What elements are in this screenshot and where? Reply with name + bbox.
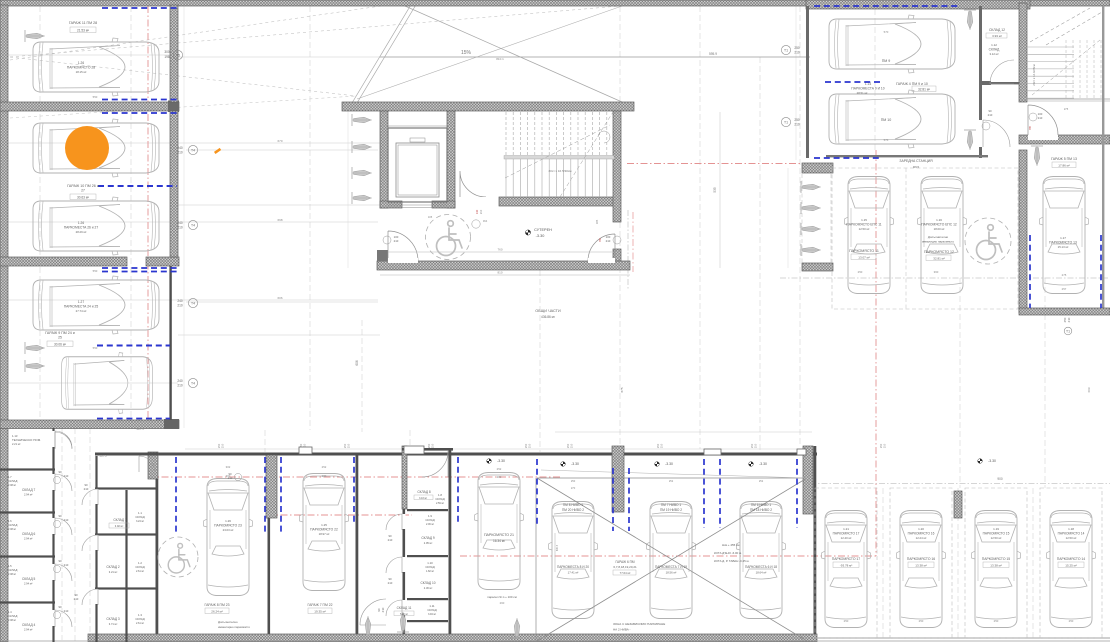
svg-text:18.64 м²: 18.64 м²	[756, 571, 767, 575]
svg-text:ПАРКОМЕСТА 8 И 20: ПАРКОМЕСТА 8 И 20	[557, 565, 589, 569]
svg-text:90: 90	[58, 605, 62, 609]
svg-text:ЗОНА С НЕЗАВИСИМО ПАРКИРАНЕ: ЗОНА С НЕЗАВИСИМО ПАРКИРАНЕ	[613, 622, 665, 626]
svg-text:ПАРКОМЯСТО 17: ПАРКОМЯСТО 17	[832, 557, 861, 561]
svg-text:550: 550	[93, 346, 98, 350]
svg-text:Т1: Т1	[784, 48, 788, 52]
svg-text:Т1: Т1	[1066, 329, 1070, 333]
svg-text:630.5: 630.5	[556, 544, 559, 551]
svg-text:240: 240	[177, 379, 183, 383]
svg-text:210: 210	[388, 538, 393, 542]
svg-text:ПАРКОМЕСТА 9 И 10: ПАРКОМЕСТА 9 И 10	[851, 87, 884, 91]
svg-text:12.50 м²: 12.50 м²	[991, 536, 1002, 540]
svg-text:1.18: 1.18	[1068, 527, 1074, 531]
svg-text:ПАРКОМЕСТА 24 и 25: ПАРКОМЕСТА 24 и 25	[64, 305, 99, 309]
svg-text:ПАРКОМЯСТО 23: ПАРКОМЯСТО 23	[214, 524, 242, 528]
svg-text:Нсв.+ 455 см: Нсв.+ 455 см	[722, 543, 739, 547]
svg-text:Т1: Т1	[784, 120, 788, 124]
svg-text:275: 275	[1064, 107, 1069, 111]
svg-text:12.24 м²: 12.24 м²	[916, 536, 927, 540]
svg-text:1.26: 1.26	[225, 519, 231, 523]
svg-text:21.53 м²: 21.53 м²	[77, 28, 89, 32]
svg-text:ПМ 20 НИВО 2: ПМ 20 НИВО 2	[562, 508, 584, 512]
svg-text:КОТА Д. Р. ТАВАН -0.45 м.: КОТА Д. Р. ТАВАН -0.45 м.	[714, 559, 749, 563]
svg-text:198: 198	[164, 55, 170, 59]
svg-text:210: 210	[794, 51, 800, 55]
svg-text:364: 364	[483, 219, 488, 223]
svg-text:ГАРАЖ 11 ПМ 28: ГАРАЖ 11 ПМ 28	[69, 21, 97, 25]
svg-text:250: 250	[343, 443, 347, 448]
svg-text:210: 210	[754, 443, 758, 448]
svg-text:ГАРАЖ 9 ПМ 24 и: ГАРАЖ 9 ПМ 24 и	[45, 331, 75, 335]
svg-text:СКЛАД: СКЛАД	[425, 565, 434, 569]
svg-text:185: 185	[595, 219, 599, 224]
svg-text:250: 250	[524, 443, 528, 448]
svg-text:Т5: Т5	[176, 53, 180, 57]
svg-text:ПАРКОМЕСТА 7 И 19: ПАРКОМЕСТА 7 И 19	[655, 565, 687, 569]
svg-text:ПАРКОМЯСТО 14: ПАРКОМЯСТО 14	[1057, 557, 1086, 561]
svg-text:3.93 м²: 3.93 м²	[992, 34, 1002, 38]
svg-text:210: 210	[221, 443, 225, 448]
svg-text:СКЛАД: СКЛАД	[427, 608, 436, 612]
svg-text:210: 210	[381, 607, 385, 612]
svg-text:810.1: 810.1	[496, 57, 504, 61]
svg-text:Т4: Т4	[191, 223, 195, 227]
svg-text:77.64 м²: 77.64 м²	[620, 571, 631, 575]
svg-text:5.20 м²: 5.20 м²	[400, 613, 408, 616]
svg-text:ОБЩИ ЧАСТИ: ОБЩИ ЧАСТИ	[535, 309, 561, 313]
svg-text:210: 210	[177, 151, 183, 155]
svg-text:ПАРКОМЯСТО 22: ПАРКОМЯСТО 22	[310, 528, 338, 532]
svg-text:СКЛАД: СКЛАД	[8, 523, 17, 527]
svg-text:ПАРКОМЯСТО 17: ПАРКОМЯСТО 17	[833, 532, 860, 536]
svg-text:240: 240	[177, 146, 183, 150]
svg-text:606: 606	[355, 360, 359, 366]
svg-text:СКЛАД: СКЛАД	[435, 497, 444, 501]
svg-text:270: 270	[571, 486, 576, 490]
svg-text:ГАРАЖ 6 ПМ: ГАРАЖ 6 ПМ	[615, 560, 634, 564]
svg-text:105: 105	[428, 215, 433, 219]
svg-text:670: 670	[277, 139, 282, 143]
svg-text:210: 210	[988, 113, 993, 117]
svg-text:3.21 м²: 3.21 м²	[109, 570, 118, 574]
svg-text:Т4: Т4	[191, 301, 195, 305]
svg-text:13.38 м²: 13.38 м²	[990, 564, 1001, 568]
svg-text:3.94 м²: 3.94 м²	[428, 613, 436, 616]
svg-text:2.08 м²: 2.08 м²	[8, 573, 16, 576]
svg-text:2.94 м²: 2.94 м²	[24, 628, 33, 632]
svg-text:2.94 м²: 2.94 м²	[24, 582, 33, 586]
svg-text:436.86 м²: 436.86 м²	[541, 315, 555, 319]
svg-text:3.43 м²: 3.43 м²	[419, 497, 427, 500]
svg-text:СКЛАД: СКЛАД	[425, 518, 434, 522]
svg-text:ПВ: ПВ	[1028, 126, 1032, 130]
svg-text:1.25: 1.25	[321, 523, 327, 527]
svg-text:360: 360	[226, 474, 231, 478]
svg-text:ТЕХНИЧЕСКО ПОМ.: ТЕХНИЧЕСКО ПОМ.	[12, 438, 41, 442]
svg-text:2.21 м²: 2.21 м²	[12, 442, 21, 446]
svg-text:ПАРКОМЯСТО 15: ПАРКОМЯСТО 15	[982, 557, 1011, 561]
svg-text:32.81 м²: 32.81 м²	[933, 257, 944, 261]
svg-text:СКЛАД 1: СКЛАД 1	[113, 518, 127, 522]
svg-text:СКЛАД 6: СКЛАД 6	[22, 532, 36, 536]
svg-text:ПМ 7 НИВО 1: ПМ 7 НИВО 1	[661, 503, 681, 507]
svg-text:1.27: 1.27	[78, 300, 84, 304]
svg-text:30.63 м²: 30.63 м²	[77, 195, 89, 199]
svg-text:300: 300	[164, 50, 170, 54]
svg-text:250: 250	[879, 443, 883, 448]
svg-text:СКЛАД: СКЛАД	[8, 479, 17, 483]
svg-text:27: 27	[81, 189, 85, 193]
svg-text:210: 210	[479, 209, 483, 214]
svg-text:18.56 м²: 18.56 м²	[666, 571, 677, 575]
svg-text:297.3: 297.3	[100, 454, 107, 458]
svg-text:250: 250	[794, 118, 800, 122]
svg-text:Допълнително: Допълнително	[928, 235, 949, 239]
svg-text:12.50 м²: 12.50 м²	[859, 227, 870, 231]
svg-text:28.51 м²: 28.51 м²	[857, 91, 868, 95]
svg-text:Т4: Т4	[191, 381, 195, 385]
svg-text:1.17: 1.17	[1060, 236, 1066, 240]
svg-text:-3.30: -3.30	[665, 462, 673, 466]
svg-text:ЗАРЕДНА СТАНЦИЯ: ЗАРЕДНА СТАНЦИЯ	[899, 159, 933, 163]
svg-text:17.86 м²: 17.86 м²	[1058, 163, 1069, 167]
svg-text:инвалидно паркомясто: инвалидно паркомясто	[922, 240, 954, 244]
svg-text:ПАРКОМЯСТО 21: ПАРКОМЯСТО 21	[484, 533, 514, 537]
svg-text:СКЛАД 10: СКЛАД 10	[420, 581, 435, 585]
svg-text:280: 280	[322, 474, 327, 478]
svg-text:9/6.5: 9/6.5	[913, 165, 920, 169]
svg-text:2.08 м²: 2.08 м²	[8, 484, 16, 487]
svg-text:12.40 м²: 12.40 м²	[841, 536, 852, 540]
svg-text:инвентарно паркомясто: инвентарно паркомясто	[218, 625, 250, 629]
svg-text:875: 875	[620, 387, 624, 392]
svg-text:18.15 м²: 18.15 м²	[76, 70, 87, 74]
svg-text:760: 760	[497, 248, 502, 252]
svg-text:23.03 м²: 23.03 м²	[223, 528, 234, 532]
svg-text:ГАРАЖ 5 ПМ 13: ГАРАЖ 5 ПМ 13	[1051, 157, 1077, 161]
svg-text:698: 698	[277, 218, 282, 222]
svg-text:250: 250	[571, 479, 576, 483]
svg-text:30.06 м²: 30.06 м²	[54, 342, 66, 346]
svg-text:20ст х 16.4/28см: 20ст х 16.4/28см	[1032, 64, 1036, 85]
svg-text:210: 210	[794, 123, 800, 127]
svg-text:1.16: 1.16	[936, 218, 942, 222]
svg-text:ПМ 6 НИВО 1: ПМ 6 НИВО 1	[751, 503, 771, 507]
svg-text:-3.30: -3.30	[759, 462, 767, 466]
svg-text:2.59 м²: 2.59 м²	[436, 502, 444, 505]
svg-text:СКЛАД 2: СКЛАД 2	[106, 565, 120, 569]
svg-text:240: 240	[177, 221, 183, 225]
svg-text:210: 210	[606, 239, 611, 243]
svg-text:210: 210	[177, 226, 183, 230]
svg-text:ГАРАЖ 8 ПМ 23: ГАРАЖ 8 ПМ 23	[204, 603, 229, 607]
svg-text:ПМ 10: ПМ 10	[881, 118, 892, 122]
svg-text:252: 252	[669, 479, 674, 483]
svg-text:паралел 9т.п.+ 100 см: паралел 9т.п.+ 100 см	[487, 595, 516, 599]
svg-text:15.13 м²: 15.13 м²	[1058, 245, 1069, 249]
svg-text:609: 609	[1087, 387, 1091, 392]
svg-text:595.9: 595.9	[709, 52, 717, 56]
svg-text:1.82 м²: 1.82 м²	[426, 570, 434, 573]
svg-text:15.25 м²: 15.25 м²	[1065, 564, 1076, 568]
svg-text:СКЛАД: СКЛАД	[135, 617, 144, 621]
svg-text:3.71 м²: 3.71 м²	[109, 622, 118, 626]
svg-text:606: 606	[277, 296, 282, 300]
svg-text:1.26: 1.26	[78, 221, 84, 225]
svg-text:ПАРКОМЯСТО 11: ПАРКОМЯСТО 11	[849, 249, 879, 253]
svg-text:13.07 м²: 13.07 м²	[858, 256, 869, 260]
svg-text:210: 210	[64, 518, 69, 522]
svg-text:6,7,8,18,19,20,21: 6,7,8,18,19,20,21	[613, 565, 637, 569]
svg-text:210: 210	[177, 384, 183, 388]
svg-text:ПАРКОМЯСТО 15: ПАРКОМЯСТО 15	[983, 532, 1010, 536]
svg-text:18.00 м²: 18.00 м²	[934, 227, 945, 231]
svg-text:210: 210	[528, 443, 532, 448]
svg-text:СКЛАД 12: СКЛАД 12	[989, 28, 1005, 32]
svg-text:900: 900	[997, 477, 1003, 481]
svg-text:3.12 м²: 3.12 м²	[989, 52, 998, 56]
svg-text:2.94 м²: 2.94 м²	[24, 493, 33, 497]
svg-text:ПМ 19 НИВО 2: ПМ 19 НИВО 2	[660, 508, 682, 512]
svg-text:2.06 м²: 2.06 м²	[426, 523, 434, 526]
svg-text:ПМ 9: ПМ 9	[882, 59, 891, 63]
svg-text:210: 210	[431, 443, 435, 448]
svg-text:СКЛАД: СКЛАД	[135, 515, 144, 519]
svg-text:15%: 15%	[461, 50, 472, 56]
svg-text:550: 550	[93, 269, 98, 273]
svg-text:ПАРКОМЯСТО 12: ПАРКОМЯСТО 12	[924, 250, 954, 254]
svg-text:210: 210	[64, 474, 69, 478]
svg-text:26.24 м²: 26.24 м²	[211, 609, 222, 613]
svg-text:360: 360	[934, 270, 939, 274]
svg-text:210: 210	[570, 443, 574, 448]
svg-text:17.41 м²: 17.41 м²	[568, 571, 579, 575]
svg-text:ПАРКОМЯСТО 28: ПАРКОМЯСТО 28	[67, 66, 96, 70]
svg-text:387.5: 387.5	[136, 427, 144, 431]
svg-text:210: 210	[64, 609, 69, 613]
svg-text:СКЛАД: СКЛАД	[135, 565, 144, 569]
svg-text:275: 275	[1062, 273, 1067, 277]
svg-text:252: 252	[322, 465, 327, 469]
svg-text:210: 210	[394, 239, 399, 243]
svg-text:210: 210	[388, 581, 393, 585]
svg-text:250: 250	[794, 46, 800, 50]
svg-text:2.61 м²: 2.61 м²	[136, 570, 144, 573]
svg-text:250: 250	[750, 443, 754, 448]
svg-text:1.14: 1.14	[865, 82, 871, 86]
svg-text:СУТЕРЕН: СУТЕРЕН	[534, 228, 552, 232]
svg-text:3.24 м²: 3.24 м²	[136, 520, 144, 523]
svg-text:СКЛАД: СКЛАД	[8, 614, 17, 618]
svg-text:-3.30: -3.30	[536, 234, 545, 238]
svg-text:СКЛАД 7: СКЛАД 7	[22, 488, 36, 492]
svg-text:2.61 м²: 2.61 м²	[136, 622, 144, 625]
svg-text:ПАРКОМЯСТО ЕПС 11: ПАРКОМЯСТО ЕПС 11	[846, 223, 881, 227]
svg-text:25: 25	[58, 336, 62, 340]
svg-text:ПАРКОМЕСТА 26 и 27: ПАРКОМЕСТА 26 и 27	[64, 226, 99, 230]
svg-text:ПАРКОМЯСТО 14: ПАРКОМЯСТО 14	[1058, 532, 1085, 536]
svg-text:19.35 м²: 19.35 м²	[314, 609, 325, 613]
svg-text:210: 210	[883, 443, 887, 448]
svg-text:32.81 м²: 32.81 м²	[918, 87, 930, 91]
svg-text:550: 550	[93, 95, 98, 99]
svg-text:-3.30: -3.30	[988, 459, 996, 463]
svg-text:90: 90	[58, 470, 62, 474]
svg-text:СКЛАД: СКЛАД	[8, 568, 17, 572]
svg-text:Допълнително: Допълнително	[218, 620, 238, 624]
svg-text:ПАРКОМЯСТО 16: ПАРКОМЯСТО 16	[907, 557, 936, 561]
svg-text:ПМ 18 НИВО 2: ПМ 18 НИВО 2	[750, 508, 772, 512]
svg-text:3.92 м²: 3.92 м²	[115, 524, 124, 528]
svg-text:140: 140	[475, 209, 479, 214]
svg-text:-93.78 м²: -93.78 м²	[840, 564, 852, 568]
svg-text:28.29 м²: 28.29 м²	[76, 230, 87, 234]
svg-text:-3.30: -3.30	[571, 462, 579, 466]
svg-text:570: 570	[884, 138, 889, 142]
svg-text:210: 210	[1038, 116, 1043, 120]
svg-text:18.97 м²: 18.97 м²	[319, 532, 330, 536]
svg-text:ГАРАЖ 10 ПМ 26 и: ГАРАЖ 10 ПМ 26 и	[67, 184, 99, 188]
svg-text:16.34 м²: 16.34 м²	[493, 539, 505, 543]
svg-text:250: 250	[1069, 619, 1074, 623]
svg-text:810: 810	[497, 271, 502, 275]
svg-text:252: 252	[759, 479, 764, 483]
svg-text:Т4: Т4	[191, 148, 195, 152]
svg-text:СКЛАД 3: СКЛАД 3	[106, 617, 120, 621]
svg-text:210: 210	[347, 443, 351, 448]
svg-text:НА 2 НИВА -: НА 2 НИВА -	[613, 628, 631, 632]
svg-text:СКЛАД: СКЛАД	[989, 48, 1000, 52]
svg-text:250: 250	[994, 619, 999, 623]
svg-text:КОТА ДЪНО -6.00 м.: КОТА ДЪНО -6.00 м.	[714, 551, 742, 555]
svg-text:ГАРАЖ 4 ПМ 9 и 10: ГАРАЖ 4 ПМ 9 и 10	[896, 82, 928, 86]
svg-text:1.12: 1.12	[991, 43, 997, 47]
svg-text:СКЛАД 11: СКЛАД 11	[397, 606, 412, 610]
svg-text:252: 252	[497, 467, 502, 471]
svg-text:ПАРКОМЯСТО ЕПС 12: ПАРКОМЯСТО ЕПС 12	[921, 223, 957, 227]
svg-text:2.94 м²: 2.94 м²	[24, 537, 33, 541]
svg-text:260: 260	[500, 601, 505, 605]
svg-text:1.19: 1.19	[993, 527, 999, 531]
svg-text:12.50 м²: 12.50 м²	[1066, 536, 1077, 540]
svg-text:СКЛАД 9: СКЛАД 9	[421, 536, 435, 540]
svg-text:ПАРКОМЕСТА 6 И 18: ПАРКОМЕСТА 6 И 18	[745, 565, 777, 569]
svg-text:1.26: 1.26	[78, 61, 84, 65]
svg-text:210: 210	[1067, 317, 1071, 322]
svg-text:250: 250	[427, 443, 431, 448]
svg-text:90: 90	[58, 514, 62, 518]
svg-text:2.95 м²: 2.95 м²	[424, 541, 433, 545]
svg-text:210: 210	[74, 597, 79, 601]
svg-text:250: 250	[858, 270, 863, 274]
svg-text:ПАРКОМЯСТО 13: ПАРКОМЯСТО 13	[1049, 241, 1077, 245]
svg-text:210: 210	[64, 563, 69, 567]
svg-text:2.08 м²: 2.08 м²	[8, 528, 16, 531]
svg-text:СКЛАД 5: СКЛАД 5	[22, 577, 36, 581]
svg-text:1.20: 1.20	[918, 527, 924, 531]
svg-text:ГАРАЖ 7 ПМ 22: ГАРАЖ 7 ПМ 22	[307, 603, 332, 607]
svg-text:-3.30: -3.30	[497, 459, 505, 463]
svg-text:СКЛАД 4: СКЛАД 4	[22, 623, 36, 627]
svg-text:250: 250	[217, 443, 221, 448]
svg-text:2.08 м²: 2.08 м²	[8, 619, 16, 622]
svg-text:1.21: 1.21	[843, 527, 849, 531]
svg-text:ПАРКОМЯСТО 16: ПАРКОМЯСТО 16	[908, 532, 935, 536]
svg-text:250: 250	[919, 619, 924, 623]
svg-text:257: 257	[1062, 287, 1067, 291]
svg-text:210: 210	[84, 487, 89, 491]
svg-text:СКЛАД 8: СКЛАД 8	[417, 490, 431, 494]
svg-text:570: 570	[884, 30, 889, 34]
svg-text:20ст х 16.5/30см: 20ст х 16.5/30см	[549, 169, 572, 173]
svg-text:280: 280	[497, 475, 502, 479]
svg-text:ПМ 8 НИВО 1: ПМ 8 НИВО 1	[563, 503, 583, 507]
svg-text:240: 240	[177, 299, 183, 303]
svg-text:ПВ: ПВ	[598, 238, 602, 242]
svg-text:2.30 м²: 2.30 м²	[424, 586, 433, 590]
svg-text:250: 250	[656, 443, 660, 448]
svg-text:302: 302	[226, 465, 231, 469]
svg-text:250: 250	[566, 443, 570, 448]
svg-text:1.15: 1.15	[861, 218, 867, 222]
svg-text:90: 90	[58, 559, 62, 563]
svg-text:13.38 м²: 13.38 м²	[915, 564, 926, 568]
svg-text:250: 250	[844, 619, 849, 623]
svg-text:535: 535	[713, 187, 717, 193]
svg-text:210: 210	[177, 304, 183, 308]
svg-text:210: 210	[660, 443, 664, 448]
svg-text:27.74 м²: 27.74 м²	[76, 309, 87, 313]
